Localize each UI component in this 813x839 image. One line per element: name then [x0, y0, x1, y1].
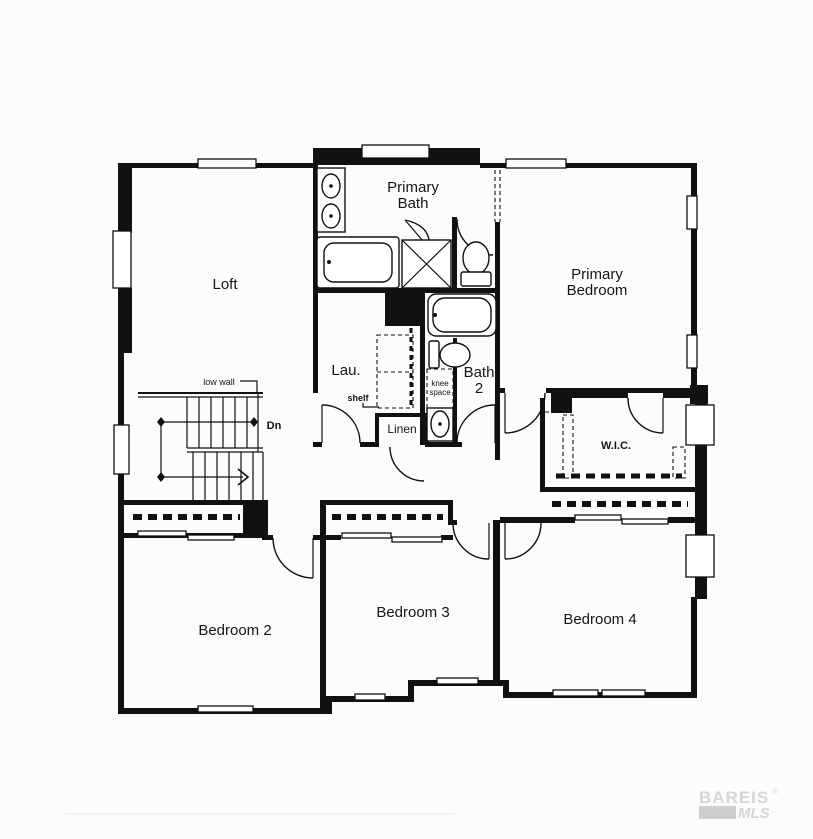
annotation-knee-1: knee — [431, 379, 449, 388]
window-bedroom3-right — [437, 678, 478, 684]
annotation-down: Dn — [267, 420, 282, 432]
low-wall-leader — [240, 381, 257, 392]
annotation-knee-2: space — [429, 388, 451, 397]
window-stairs-left — [114, 425, 129, 474]
window-primary-bedroom-right-1 — [687, 196, 697, 229]
shower — [402, 240, 451, 288]
room-label-laundry: Lau. — [331, 362, 360, 379]
cased-opening — [495, 170, 500, 222]
door-primary-bedroom — [505, 393, 545, 433]
door-linen — [390, 447, 424, 481]
window-bedroom3-left — [355, 694, 385, 700]
double-vanity — [317, 168, 345, 232]
window-primary-bedroom-right-2 — [687, 335, 697, 368]
chase-block — [385, 288, 423, 326]
room-label-bedroom4: Bedroom 4 — [563, 611, 636, 628]
room-label-bedroom3: Bedroom 3 — [376, 604, 449, 621]
room-label-linen: Linen — [387, 422, 416, 436]
door-bath2 — [457, 405, 495, 443]
bathtub-primary — [317, 237, 399, 288]
door-wic — [628, 398, 663, 433]
window-primary-bedroom-top — [506, 159, 566, 168]
floorplan-canvas: Loft Primary Bath Primary Bedroom Lau. B… — [0, 0, 813, 839]
door-bedroom3 — [453, 523, 489, 559]
laundry-shelf — [363, 328, 413, 408]
annotation-shelf: shelf — [347, 393, 369, 403]
room-label-primary-bedroom-1: Primary — [571, 266, 623, 283]
wic-corner-block — [551, 393, 572, 413]
watermark-sub: MLS — [738, 805, 770, 822]
stairs — [138, 381, 263, 500]
bathtub-bath2 — [428, 294, 496, 336]
window-bedroom4-1 — [553, 690, 598, 696]
room-label-bath2-1: Bath — [464, 364, 495, 381]
door-bedroom2 — [273, 538, 313, 578]
floorplan-drawing: Loft Primary Bath Primary Bedroom Lau. B… — [0, 0, 813, 839]
window-primary-bath — [362, 145, 429, 158]
room-label-bath2-2: 2 — [475, 380, 483, 397]
room-label-bedroom2: Bedroom 2 — [198, 622, 271, 639]
watermark-registered: ® — [772, 787, 778, 796]
window-loft-top — [198, 159, 256, 168]
window-box-right-2 — [686, 535, 714, 577]
room-label-primary-bath-2: Bath — [398, 195, 429, 212]
watermark: BAREIS ® MLS — [699, 787, 778, 822]
vanity-bath2 — [427, 408, 453, 441]
stair-direction-line — [157, 417, 258, 485]
toilet-primary — [461, 242, 491, 286]
door-laundry — [322, 405, 360, 443]
annotation-low-wall: low wall — [203, 377, 235, 387]
room-label-primary-bath-1: Primary — [387, 179, 439, 196]
closet-rods — [133, 476, 688, 542]
room-label-wic: W.I.C. — [601, 440, 631, 452]
room-label-primary-bedroom-2: Bedroom — [567, 282, 628, 299]
window-bedroom2 — [198, 706, 253, 712]
window-box-right-1 — [686, 405, 714, 445]
room-label-loft: Loft — [212, 276, 238, 293]
door-bedroom4 — [505, 523, 541, 559]
window-bedroom4-2 — [602, 690, 645, 696]
stair-closet-block — [243, 505, 263, 535]
window-loft-left — [113, 231, 131, 288]
watermark-block — [699, 806, 736, 819]
